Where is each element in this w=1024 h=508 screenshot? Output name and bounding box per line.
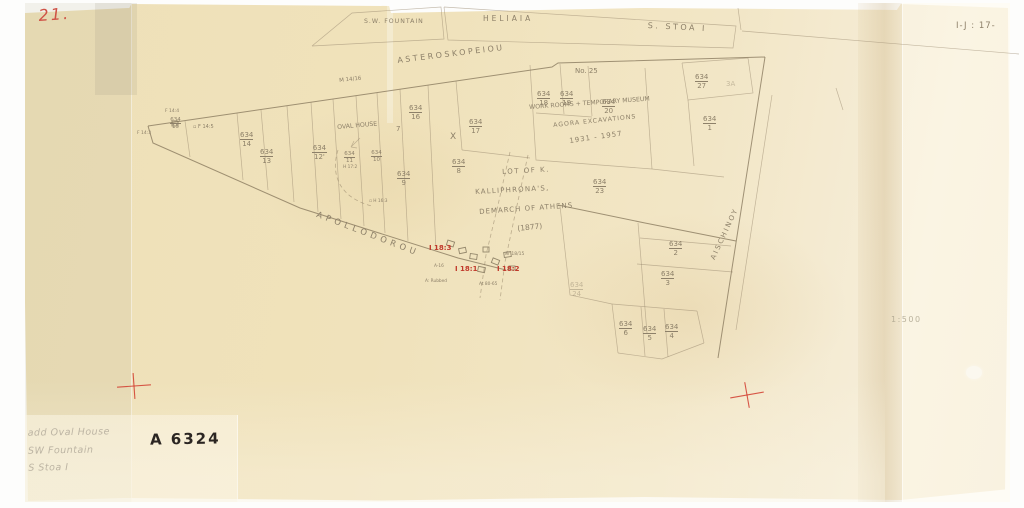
- parcel-fraction-634-18: 63418: [537, 90, 550, 107]
- catalog-note-line: SW Fountain: [28, 441, 111, 460]
- well-note-a16: A-16: [434, 265, 444, 269]
- parcel-fraction-634-13: 63413: [260, 148, 273, 165]
- parcel-fraction-634-9: 6349: [397, 170, 410, 187]
- mark-7: 7: [396, 126, 400, 133]
- well-note-ar: Ar 18/15: [505, 253, 524, 258]
- parcel-fraction-634-5: 6345: [643, 325, 656, 342]
- archive-number: A 6324: [150, 429, 221, 448]
- parcel-fraction-634-4: 6344: [665, 323, 678, 340]
- grid-reference: I-J : 17-: [956, 22, 996, 31]
- parcel-fraction-634-16: 63416: [409, 104, 422, 121]
- deposit-i18-3: I 18:3: [429, 245, 451, 252]
- parcel-fraction-634-17: 63417: [469, 118, 482, 135]
- parcel-fraction-634-6: 6346: [619, 320, 632, 337]
- mark-3a: 3A: [726, 81, 735, 88]
- parcel-fraction-634-8: 6348: [452, 158, 465, 175]
- lot-note-line-1: LOT OF K.: [502, 167, 550, 176]
- street-asteroskopeiou: ASTEROSKOPEIOU: [397, 44, 505, 65]
- parcel-fraction-634-20: 63420: [602, 98, 615, 115]
- street-aischinoy: AISCHINOY: [710, 207, 740, 261]
- mark-x: X: [450, 133, 456, 142]
- catalog-notes: add Oval House SW Fountain S Stoa I: [28, 423, 111, 477]
- grid-f14-4: F 14:4: [165, 110, 179, 115]
- building-sw-fountain: S.W. FOUNTAIN: [364, 19, 424, 25]
- scanned-map-sheet: 21. I-J : 17- 1:500 A 6324 add Oval Hous…: [0, 0, 1024, 508]
- parcel-fraction-634-27: 63427: [695, 73, 708, 90]
- grid-f14-3: F 14:3: [137, 132, 151, 137]
- grid-h16-3: ▫ H 16:3: [369, 200, 388, 204]
- parcel-no-25: No. 25: [575, 68, 598, 75]
- parcel-fraction-634-23: 63423: [593, 178, 606, 195]
- parcel-fraction-634-14: 63414: [240, 131, 253, 148]
- catalog-note-line: S Stoa I: [28, 458, 111, 477]
- building-s-stoa-i: S. STOA I: [648, 22, 708, 33]
- note-years: 1931 - 1957: [569, 131, 623, 145]
- parcel-fraction-634-10: 63410: [371, 150, 382, 164]
- annotation-layer: 21. I-J : 17- 1:500 A 6324 add Oval Hous…: [0, 0, 1024, 508]
- well-note-rubbed: A: Rubbed: [425, 280, 447, 284]
- parcel-fraction-634-24: 63424: [570, 281, 583, 298]
- grid-f14-5: ▫ F 14:5: [193, 125, 214, 130]
- lot-note-line-4: (1877): [517, 222, 543, 232]
- parcel-fraction-634-2: 6342: [669, 240, 682, 257]
- page-number: 21.: [38, 6, 70, 24]
- building-heliaia: HELIAIA: [483, 15, 533, 23]
- parcel-fraction-634-3: 6343: [661, 270, 674, 287]
- grid-m14-16: M 14/16: [339, 77, 362, 85]
- catalog-note-line: add Oval House: [28, 423, 111, 442]
- note-agora-excavations: AGORA EXCAVATIONS: [553, 114, 637, 129]
- parcel-fraction-634-19: 63419: [560, 90, 573, 107]
- parcel-fraction-634-11: 63411: [344, 151, 355, 165]
- lot-note-line-3: DEMARCH OF ATHENS: [479, 202, 573, 216]
- scale-label: 1:500: [891, 316, 922, 324]
- parcel-fraction-634-15: 63415: [170, 117, 181, 131]
- street-apollodorou: APOLLODOROU: [315, 211, 420, 258]
- parcel-fraction-634-12': 63412': [312, 144, 327, 161]
- deposit-i18-1: I 18:1: [455, 266, 477, 273]
- lot-note-line-2: KALLIPHRONA'S,: [475, 185, 550, 196]
- well-note-at: At 80-65: [479, 283, 497, 287]
- label-oval-house: OVAL HOUSE: [337, 122, 378, 132]
- grid-h17-2: H 17:2: [343, 166, 357, 170]
- deposit-i18-2: I 18:2: [497, 266, 519, 273]
- parcel-fraction-634-1: 6341: [703, 115, 716, 132]
